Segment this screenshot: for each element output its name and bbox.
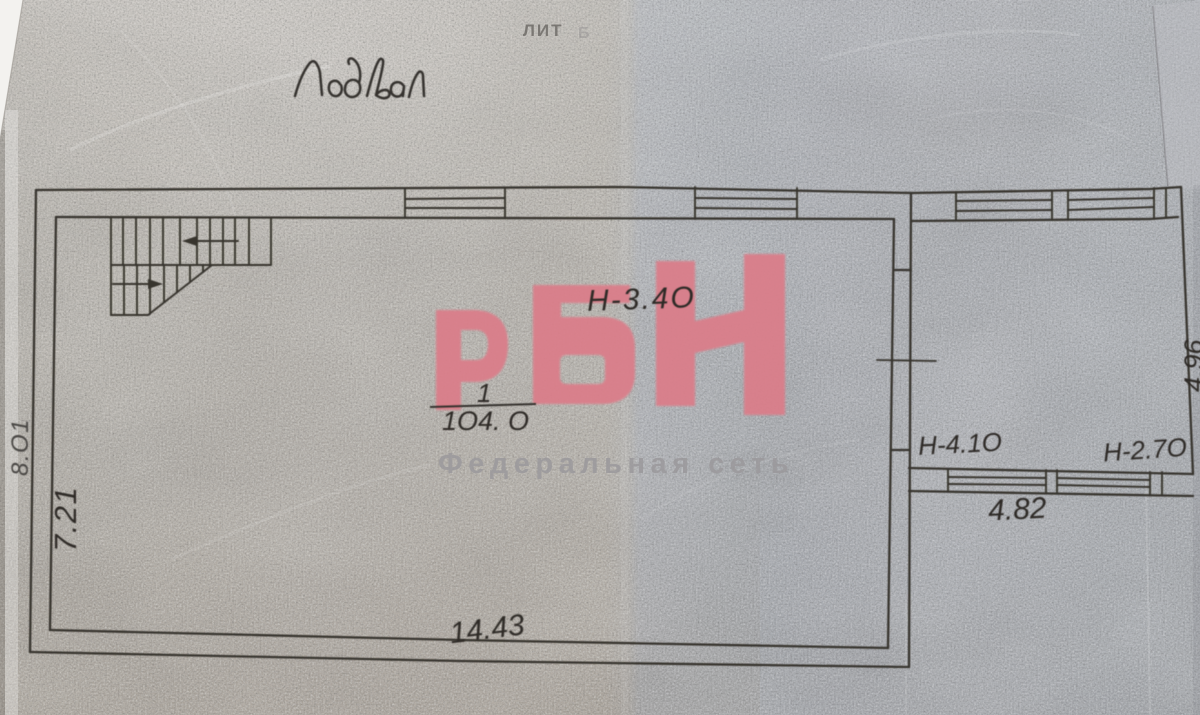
- svg-text:ЛИТ: ЛИТ: [523, 21, 564, 40]
- svg-text:Б: Б: [578, 25, 590, 42]
- svg-text:7.21: 7.21: [48, 486, 83, 552]
- svg-text:Н-2.7О: Н-2.7О: [1102, 432, 1188, 468]
- svg-text:Н-3.4О: Н-3.4О: [586, 281, 696, 318]
- svg-text:1: 1: [477, 378, 491, 408]
- svg-text:Федеральная сеть: Федеральная сеть: [438, 448, 794, 480]
- svg-text:4.82: 4.82: [987, 492, 1047, 528]
- svg-text:1О4. О: 1О4. О: [442, 406, 529, 436]
- svg-text:8.О1: 8.О1: [7, 418, 34, 476]
- svg-text:4.96: 4.96: [1179, 338, 1200, 392]
- svg-text:Н-4.1О: Н-4.1О: [917, 427, 1002, 461]
